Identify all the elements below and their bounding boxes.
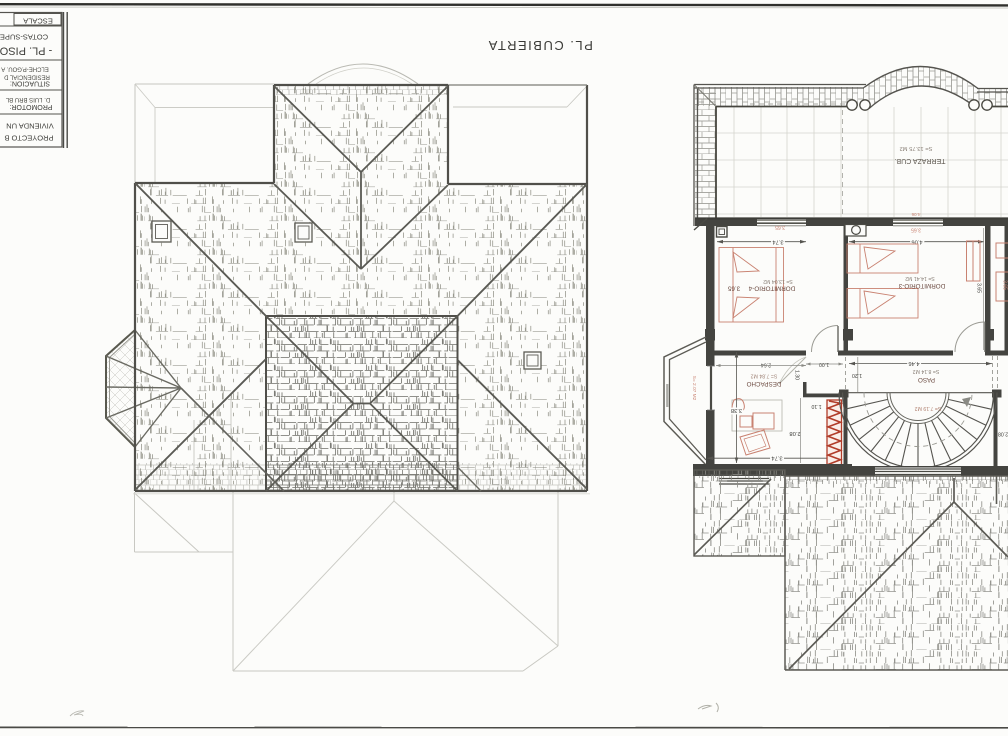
svg-text:S= 2.07 M2: S= 2.07 M2 — [691, 376, 697, 401]
svg-text:TERRAZA CUB.: TERRAZA CUB. — [894, 157, 945, 164]
svg-text:S= 7.84 M2: S= 7.84 M2 — [751, 373, 778, 379]
svg-text:3.65: 3.65 — [976, 283, 982, 293]
svg-text:DORMITORIO-4: DORMITORIO-4 — [748, 285, 795, 292]
svg-text:S= 13.04 M2: S= 13.04 M2 — [763, 278, 793, 284]
svg-text:1.30: 1.30 — [794, 370, 800, 380]
svg-text:SITUACION:: SITUACION: — [10, 80, 50, 87]
svg-text:4.06: 4.06 — [911, 238, 922, 244]
svg-text:PASO: PASO — [918, 376, 935, 383]
svg-text:DESPACHO: DESPACHO — [746, 380, 781, 387]
svg-text:VIVIENDA UN: VIVIENDA UN — [6, 121, 54, 130]
svg-text:3.65: 3.65 — [1002, 280, 1008, 290]
svg-text:- PL. PISO: - PL. PISO — [0, 44, 52, 56]
svg-text:ESCALA: ESCALA — [23, 16, 53, 25]
svg-text:D. LUIS BRU BL: D. LUIS BRU BL — [5, 96, 50, 102]
svg-text:4.06: 4.06 — [911, 212, 920, 217]
svg-text:S= 14.41 M2: S= 14.41 M2 — [905, 275, 935, 281]
svg-text:S= 13.75 M2: S= 13.75 M2 — [899, 145, 932, 151]
svg-text:S= 8.14 M2: S= 8.14 M2 — [913, 368, 940, 374]
svg-text:3.74: 3.74 — [771, 455, 783, 461]
svg-text:2.08: 2.08 — [789, 430, 800, 436]
svg-text:3.74: 3.74 — [772, 238, 784, 244]
svg-text:PROYECTO B: PROYECTO B — [4, 133, 53, 142]
svg-text:1.10: 1.10 — [811, 403, 821, 409]
svg-text:3.65: 3.65 — [911, 226, 921, 232]
svg-text:3.65: 3.65 — [775, 224, 785, 230]
svg-text:ELCHE-P.GOU. A: ELCHE-P.GOU. A — [1, 66, 49, 72]
svg-text:3.38: 3.38 — [731, 407, 742, 413]
svg-text:COTAS-SUPE: COTAS-SUPE — [0, 32, 48, 41]
svg-text:3.65: 3.65 — [727, 285, 740, 292]
svg-text:DORMITORIO-3: DORMITORIO-3 — [898, 282, 945, 289]
svg-text:PL. CUBIERTA: PL. CUBIERTA — [487, 38, 593, 53]
svg-text:4.46: 4.46 — [908, 360, 919, 366]
svg-text:RESIDENCIAL D: RESIDENCIAL D — [3, 73, 49, 79]
svg-text:2.08: 2.08 — [998, 430, 1008, 436]
svg-text:1.20: 1.20 — [852, 372, 862, 378]
svg-text:PROMOTOR:: PROMOTOR: — [9, 103, 52, 110]
svg-text:S= 7.19 M2: S= 7.19 M2 — [915, 405, 942, 411]
svg-text:2.64: 2.64 — [761, 362, 771, 368]
